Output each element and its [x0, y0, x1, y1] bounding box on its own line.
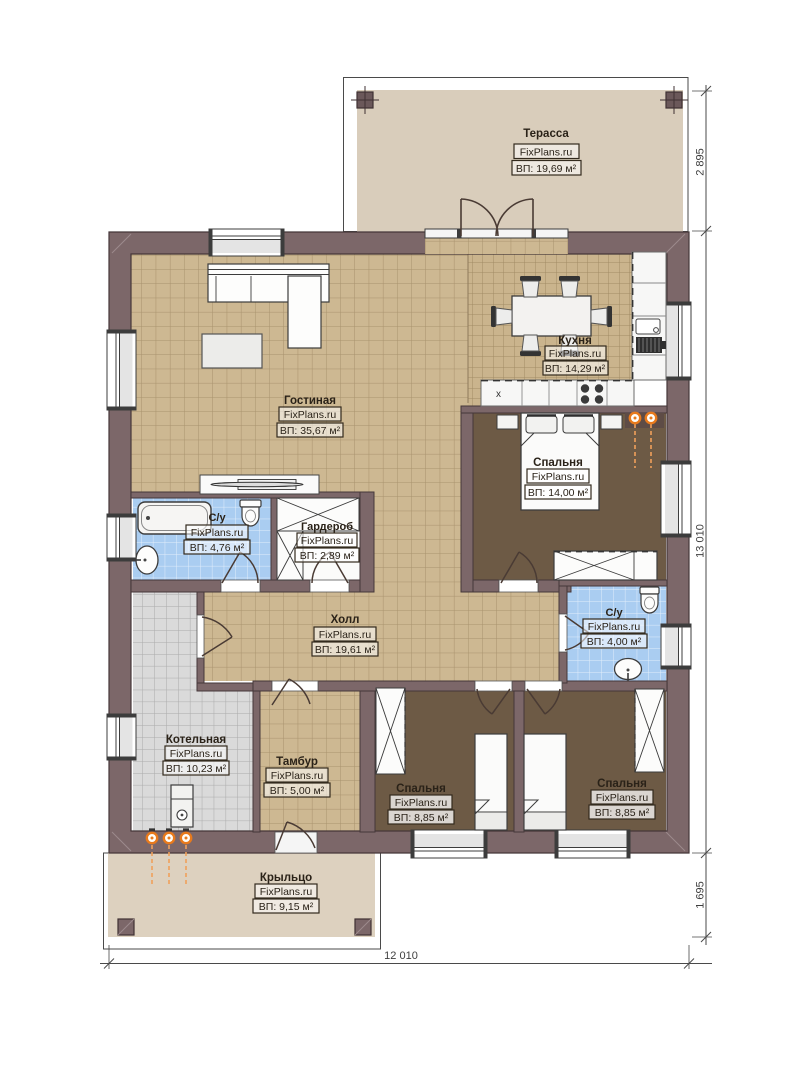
svg-text:FixPlans.ru: FixPlans.ru: [532, 471, 585, 483]
svg-text:ВП: 8,85 м²: ВП: 8,85 м²: [394, 812, 449, 824]
svg-text:FixPlans.ru: FixPlans.ru: [588, 621, 641, 633]
svg-text:FixPlans.ru: FixPlans.ru: [260, 886, 313, 898]
svg-text:Спальня: Спальня: [396, 783, 446, 795]
svg-text:ВП: 35,67 м²: ВП: 35,67 м²: [280, 425, 341, 437]
svg-text:1 695: 1 695: [695, 881, 707, 909]
svg-text:Гостиная: Гостиная: [284, 395, 336, 407]
svg-text:Котельная: Котельная: [166, 734, 226, 746]
svg-text:FixPlans.ru: FixPlans.ru: [170, 748, 223, 760]
svg-text:Терасса: Терасса: [523, 128, 569, 140]
svg-text:Тамбур: Тамбур: [276, 756, 318, 768]
svg-text:ВП: 14,29 м²: ВП: 14,29 м²: [545, 363, 606, 375]
svg-text:Холл: Холл: [331, 614, 360, 626]
svg-text:ВП: 10,23 м²: ВП: 10,23 м²: [166, 763, 227, 775]
svg-text:ВП: 2,89 м²: ВП: 2,89 м²: [300, 550, 355, 562]
svg-text:13 010: 13 010: [695, 524, 707, 558]
svg-text:FixPlans.ru: FixPlans.ru: [284, 409, 337, 421]
svg-text:ВП: 8,85 м²: ВП: 8,85 м²: [595, 807, 650, 819]
svg-text:ВП: 5,00 м²: ВП: 5,00 м²: [270, 785, 325, 797]
svg-text:Кухня: Кухня: [558, 335, 592, 347]
svg-text:FixPlans.ru: FixPlans.ru: [596, 792, 649, 804]
svg-text:FixPlans.ru: FixPlans.ru: [549, 348, 602, 360]
svg-text:Крыльцо: Крыльцо: [260, 872, 312, 884]
svg-text:С/у: С/у: [208, 512, 226, 524]
svg-text:ВП: 9,15 м²: ВП: 9,15 м²: [259, 901, 314, 913]
svg-text:FixPlans.ru: FixPlans.ru: [520, 147, 573, 159]
svg-text:FixPlans.ru: FixPlans.ru: [319, 629, 372, 641]
svg-text:Спальня: Спальня: [533, 457, 583, 469]
svg-text:Спальня: Спальня: [597, 778, 647, 790]
svg-text:FixPlans.ru: FixPlans.ru: [191, 527, 244, 539]
svg-text:FixPlans.ru: FixPlans.ru: [395, 797, 448, 809]
svg-text:12 010: 12 010: [384, 950, 418, 962]
svg-text:ВП: 19,69 м²: ВП: 19,69 м²: [516, 163, 577, 175]
svg-text:ВП: 19,61 м²: ВП: 19,61 м²: [315, 644, 376, 656]
svg-text:ВП: 14,00 м²: ВП: 14,00 м²: [528, 487, 589, 499]
svg-text:Гардероб: Гардероб: [301, 521, 353, 533]
svg-text:ВП: 4,76 м²: ВП: 4,76 м²: [190, 542, 245, 554]
svg-text:2 895: 2 895: [695, 148, 707, 176]
svg-text:x: x: [496, 389, 501, 400]
svg-text:FixPlans.ru: FixPlans.ru: [301, 535, 354, 547]
svg-text:ВП: 4,00 м²: ВП: 4,00 м²: [587, 636, 642, 648]
svg-text:С/у: С/у: [605, 607, 623, 619]
svg-text:FixPlans.ru: FixPlans.ru: [271, 770, 324, 782]
